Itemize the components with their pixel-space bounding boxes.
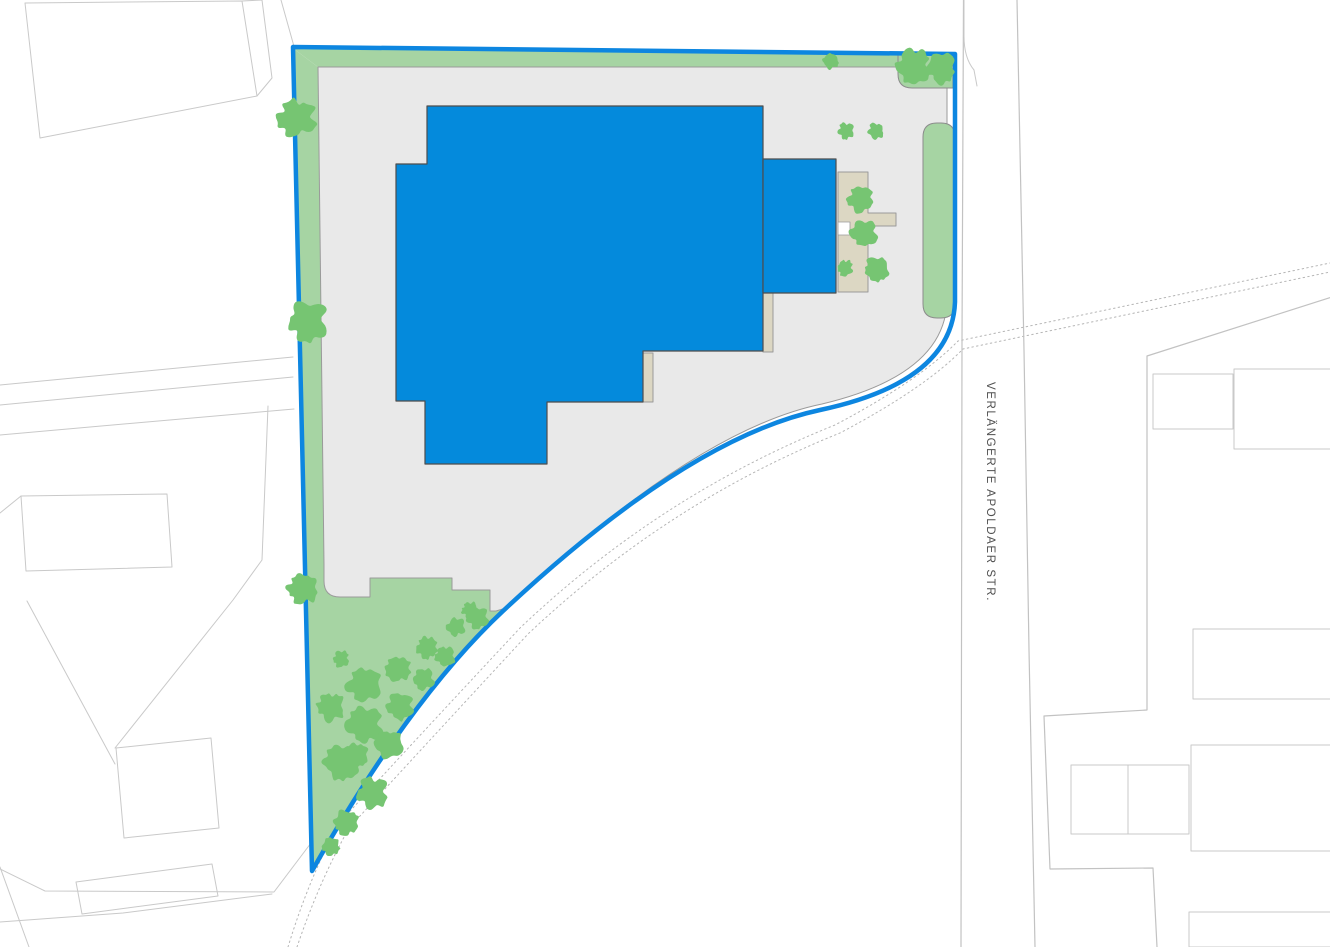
green-right-pill: [923, 123, 955, 318]
neighbors-west: [0, 0, 311, 947]
building-annex: [763, 159, 836, 293]
w-bottom-line-3: [0, 867, 29, 947]
site-plan-map: VERLÄNGERTE APOLDAER STR.: [0, 0, 1330, 947]
e-building-5: [1071, 765, 1189, 834]
w-bottom-line-1: [0, 843, 311, 892]
w-bottom-building: [76, 864, 218, 914]
tan-sliver-right: [763, 293, 773, 352]
w-road-line-3: [0, 409, 294, 435]
street-lines: [961, 0, 1330, 947]
e-building-4: [1191, 745, 1330, 851]
nw-building-2: [242, 0, 272, 96]
nw-building-1: [25, 1, 257, 138]
w-building-mid: [21, 494, 172, 571]
tree-icon: [356, 776, 387, 810]
site-plan-svg: VERLÄNGERTE APOLDAER STR.: [0, 0, 1330, 947]
street-name-label: VERLÄNGERTE APOLDAER STR.: [984, 382, 996, 602]
w-square-building: [116, 738, 219, 838]
street-label-layer: VERLÄNGERTE APOLDAER STR.: [984, 382, 996, 602]
w-parcel-line: [27, 601, 115, 764]
street-corner-curve: [964, 0, 977, 86]
w-parcel-chain: [115, 406, 268, 748]
e-building-1: [1153, 374, 1233, 429]
e-parcel-chain: [1044, 297, 1330, 947]
map-layers: [0, 0, 1330, 947]
street-west-edge: [961, 0, 964, 947]
e-building-3: [1193, 629, 1330, 699]
tree-icon: [288, 301, 326, 343]
nw-corner-line: [281, 0, 295, 50]
w-bottom-line-2: [0, 894, 272, 922]
tan-terrace-notch: [838, 222, 850, 235]
tan-sliver-step: [643, 353, 653, 402]
e-building-2: [1234, 369, 1330, 449]
street-east-edge: [1017, 0, 1035, 947]
e-building-6: [1189, 912, 1330, 947]
w-line-short: [0, 496, 21, 513]
